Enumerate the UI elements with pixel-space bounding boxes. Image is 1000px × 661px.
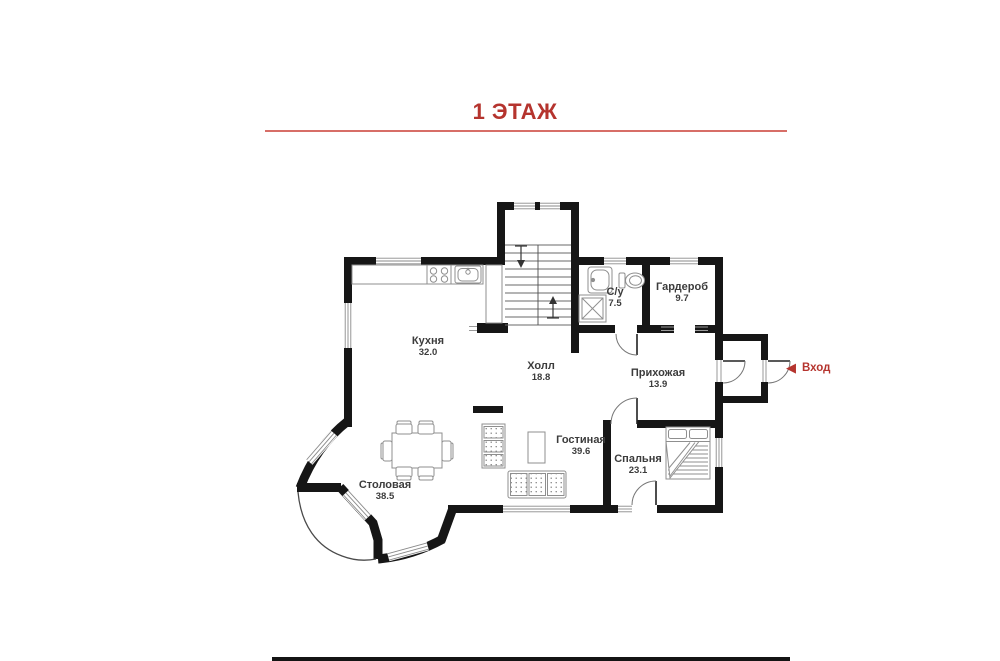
stove-icon [427, 265, 451, 284]
stair-down-arrow-icon [515, 246, 527, 268]
window [376, 257, 421, 265]
dining-furniture [381, 421, 453, 480]
bay-chord-wall [297, 483, 341, 492]
window [387, 542, 429, 562]
kitchen-fixtures [352, 265, 502, 323]
next-plan-cropped-edge [272, 657, 790, 661]
room-label-dining-room: Столовая 38.5 [359, 480, 411, 502]
chair-icon [418, 421, 434, 434]
entrance-arrow-icon: ◀ [786, 361, 796, 374]
staircase [505, 245, 571, 325]
vestibule-inner-door [723, 361, 745, 383]
bedroom-furniture [666, 427, 710, 479]
vestibule-bottom-wall [722, 396, 768, 403]
room-label-hall: Холл 18.8 [527, 361, 555, 383]
bedroom-terrace-door [632, 481, 656, 505]
cabinet-icon [482, 424, 505, 468]
window [514, 202, 535, 210]
room-label-bedroom: Спальня 23.1 [614, 454, 662, 476]
room-label-kitchen: Кухня 32.0 [412, 336, 444, 358]
kitchen-sink-icon [455, 266, 481, 283]
bedroom-hall-door [611, 398, 637, 424]
window [670, 257, 698, 265]
window [715, 438, 723, 467]
floor-plan-drawing [0, 0, 1000, 661]
hall-wall-stub [473, 406, 503, 413]
chair-icon [396, 421, 412, 434]
sofa-icon [508, 471, 566, 498]
chair-icon [381, 441, 392, 461]
room-label-living-room: Гостиная 39.6 [556, 435, 606, 457]
stair-tower-right-wall [571, 202, 579, 353]
window [618, 505, 632, 513]
terrace-arc [298, 492, 376, 560]
window [540, 202, 560, 210]
room-label-wardrobe: Гардероб 9.7 [656, 282, 708, 304]
room-label-bathroom: С/у 7.5 [606, 287, 623, 309]
floor-plan-page: 1 ЭТАЖ [0, 0, 1000, 661]
dining-table-icon [392, 433, 442, 468]
entrance-marker: ◀ Вход [786, 361, 830, 374]
bathroom-wardrobe-divider [642, 265, 650, 325]
shower-icon [579, 295, 606, 322]
window [503, 505, 570, 513]
stair-tower-left-wall [497, 202, 505, 265]
room-label-hallway: Прихожая 13.9 [631, 368, 685, 390]
kitchen-tall-cabinet [486, 265, 502, 323]
chair-icon [442, 441, 453, 461]
chair-icon [418, 467, 434, 480]
entrance-label: Вход [802, 362, 830, 374]
window [344, 303, 352, 348]
bed-icon [666, 427, 710, 479]
living-room-furniture [482, 424, 566, 498]
window [306, 430, 338, 465]
bathroom-door [616, 334, 637, 355]
stair-up-arrow-icon [547, 296, 559, 318]
window [604, 257, 626, 265]
tv-stand-icon [528, 432, 545, 463]
